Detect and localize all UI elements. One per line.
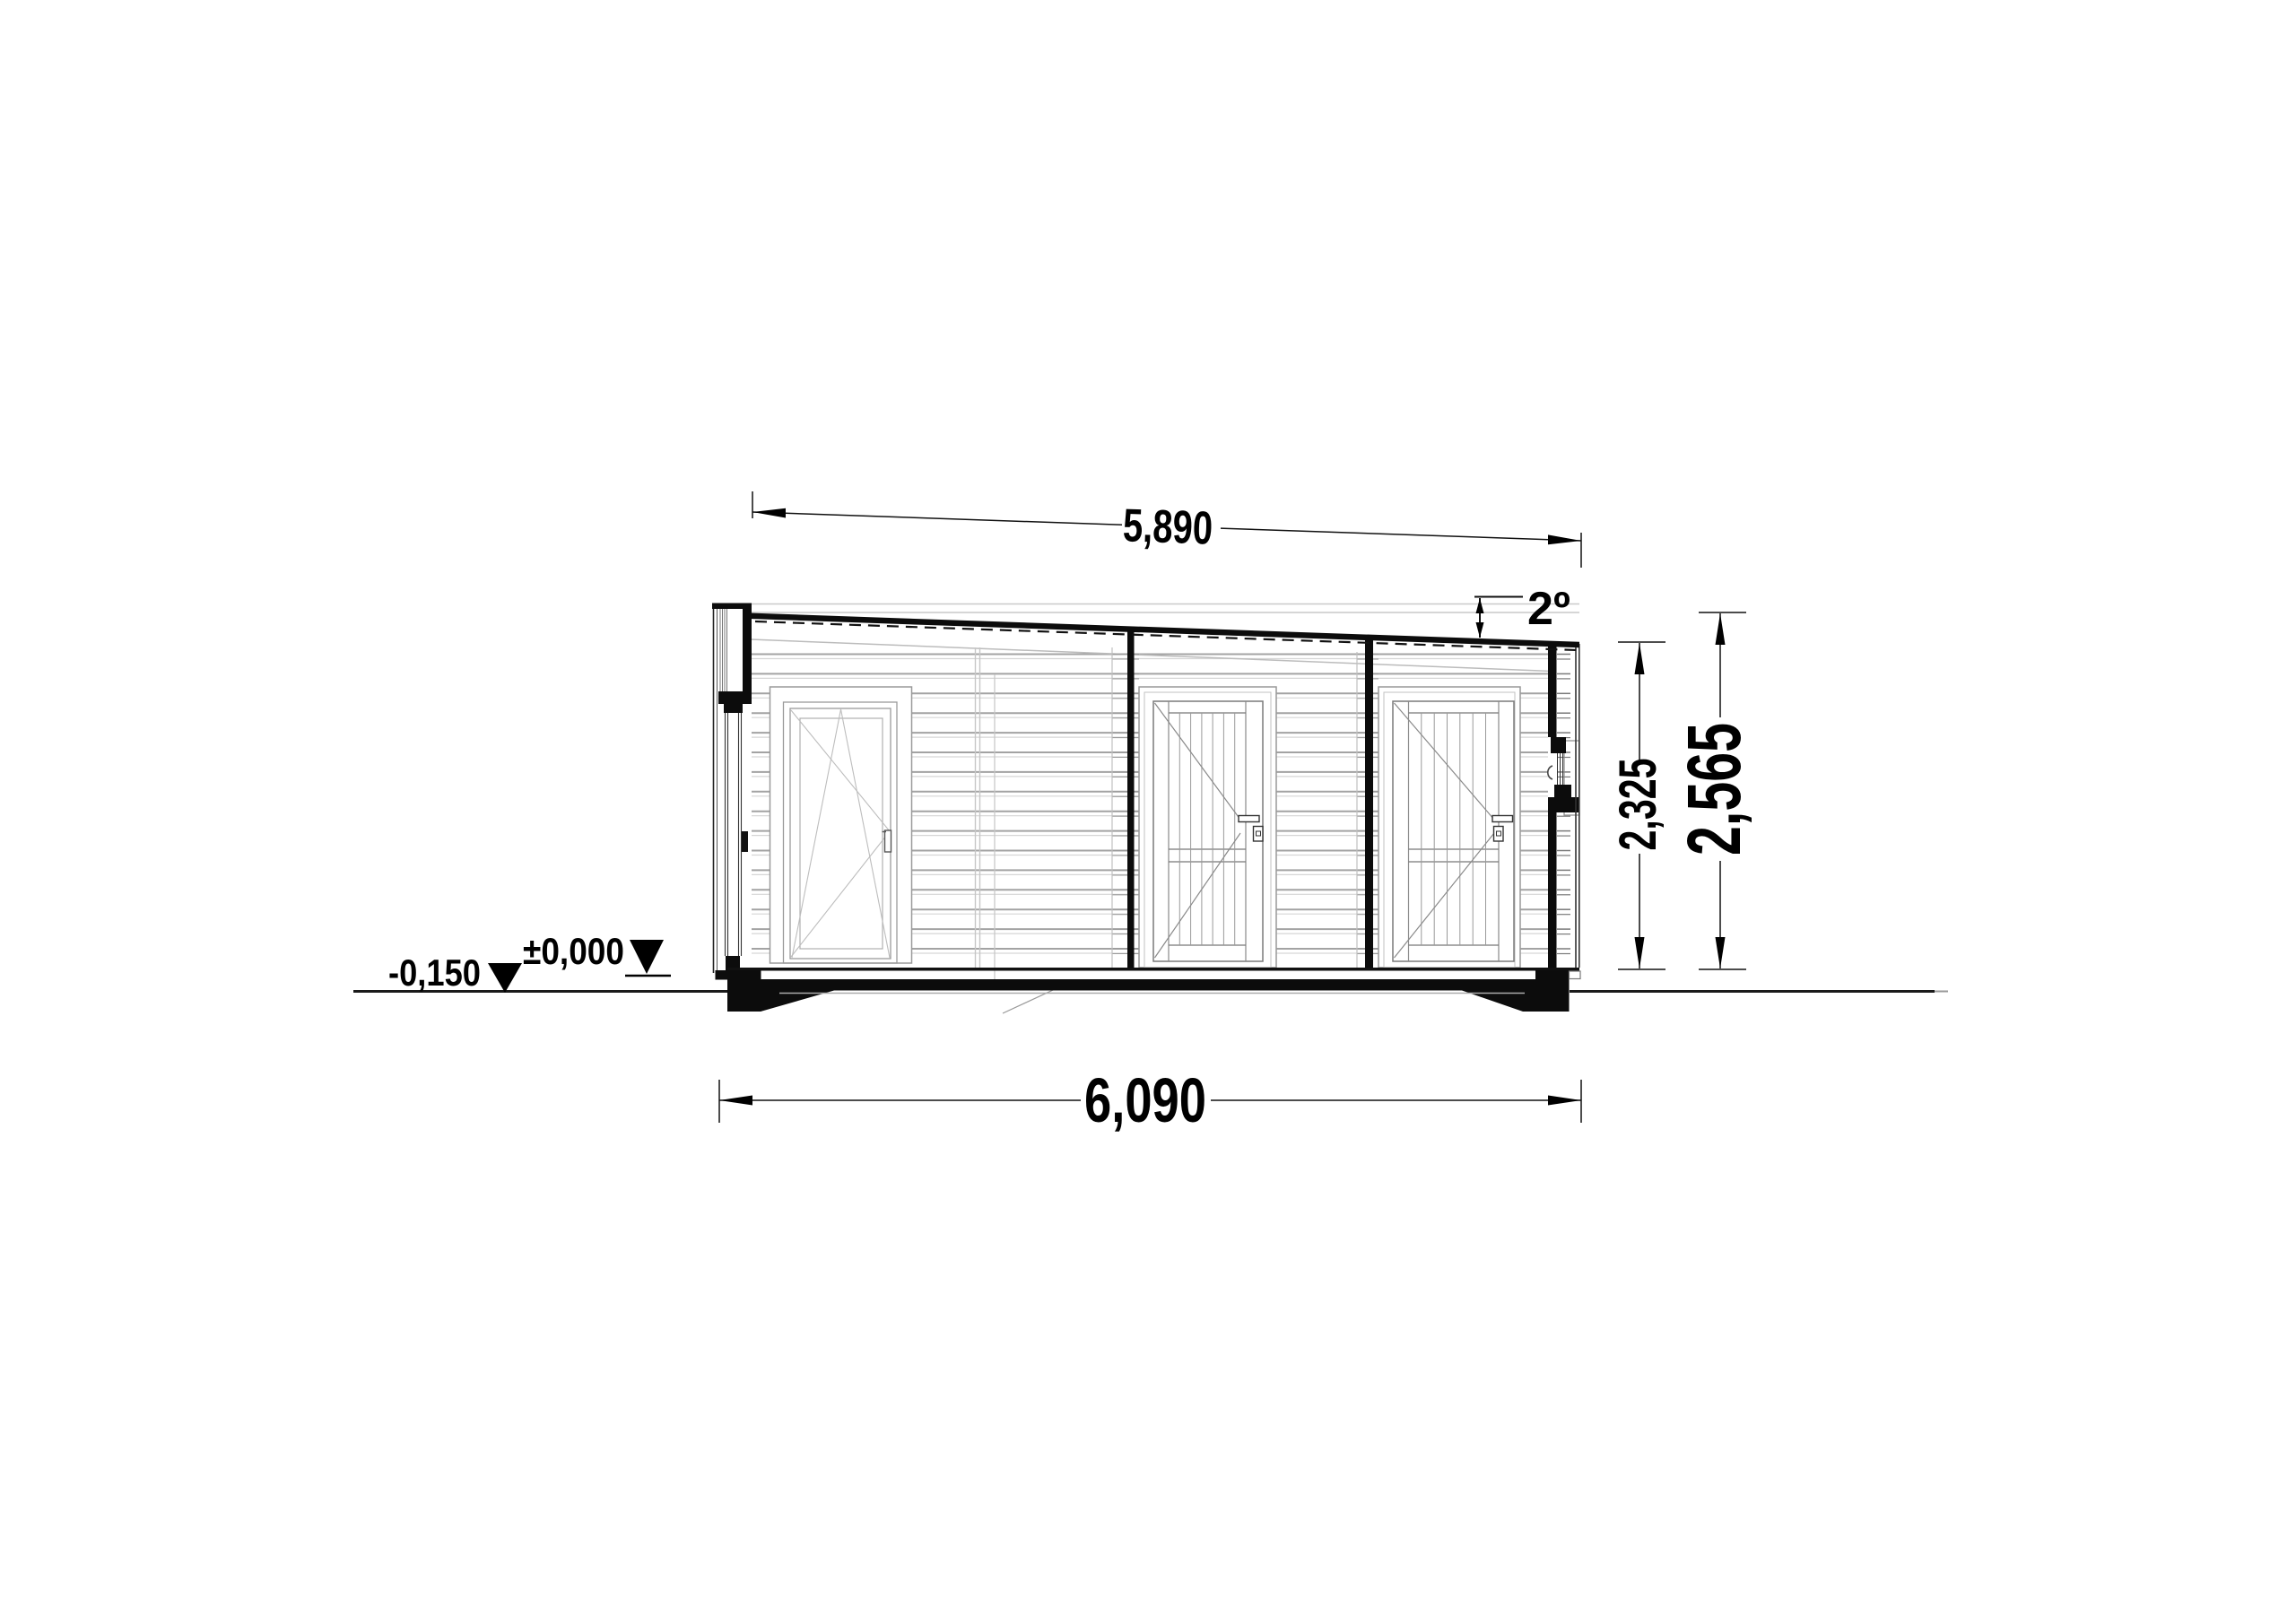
svg-text:5,890: 5,890	[1122, 499, 1213, 554]
svg-text:2,565: 2,565	[1672, 723, 1756, 855]
svg-text:±0,000: ±0,000	[523, 930, 624, 972]
svg-text:2º: 2º	[1527, 583, 1570, 635]
svg-text:-0,150: -0,150	[388, 951, 481, 994]
svg-text:6,090: 6,090	[1084, 1065, 1206, 1135]
svg-text:2,325: 2,325	[1609, 759, 1667, 851]
